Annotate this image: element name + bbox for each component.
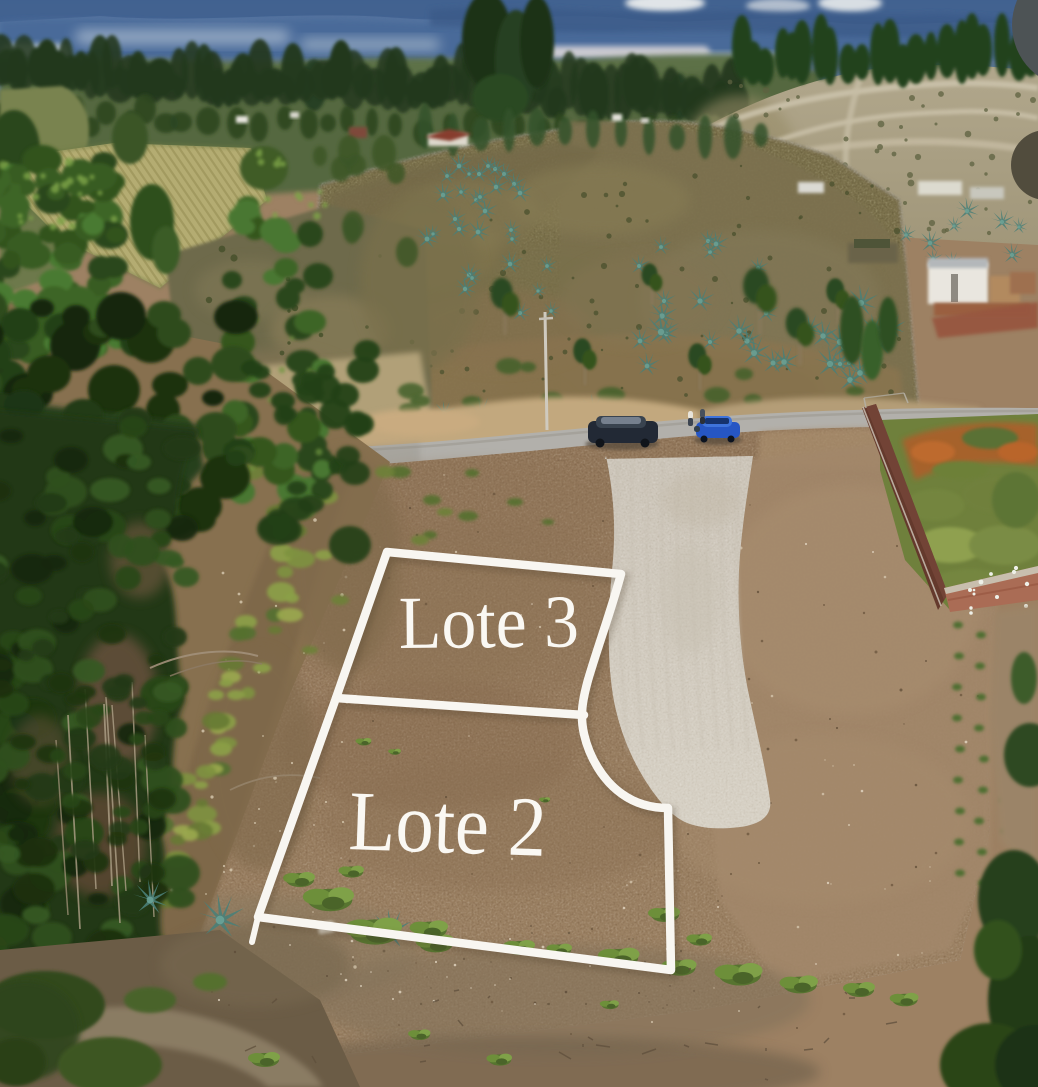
svg-text:Lote 3: Lote 3 xyxy=(398,579,579,664)
svg-text:Lote 2: Lote 2 xyxy=(347,774,548,874)
